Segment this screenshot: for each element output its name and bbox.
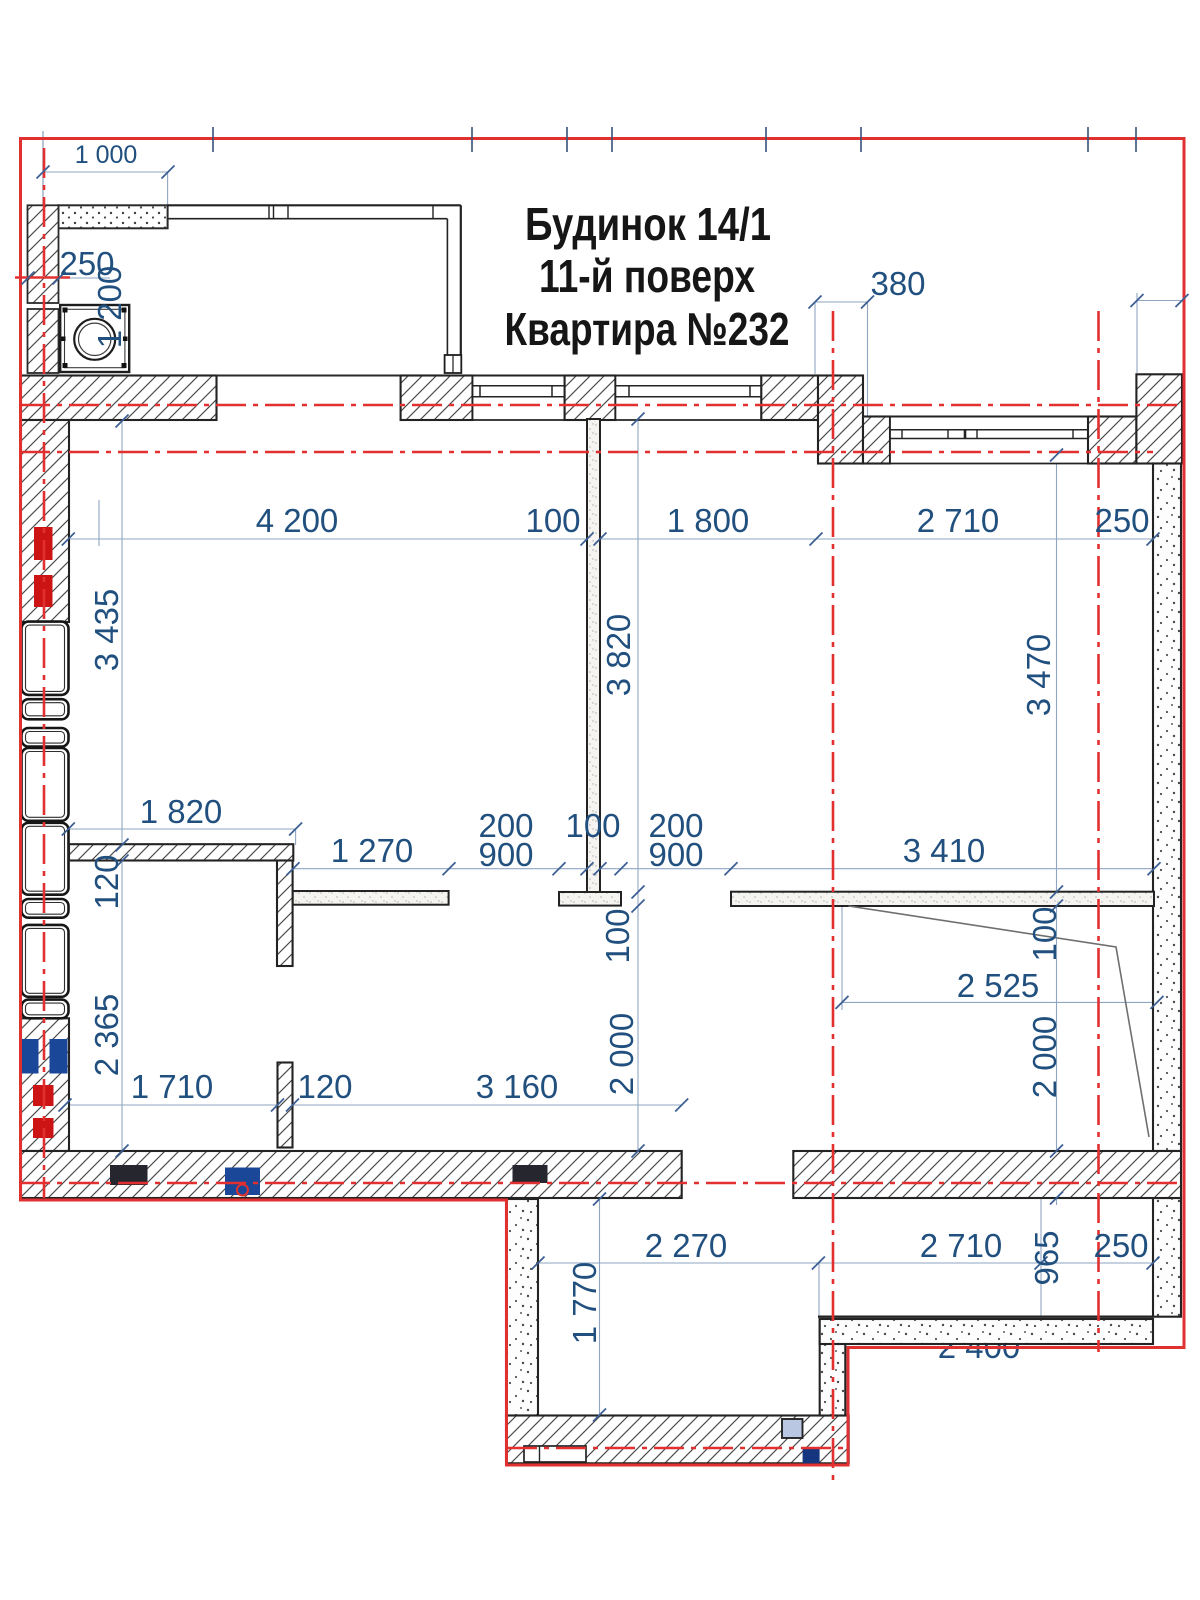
svg-text:2 000: 2 000: [603, 1013, 640, 1096]
svg-text:3 470: 3 470: [1020, 634, 1057, 717]
svg-text:Квартира №232: Квартира №232: [505, 303, 790, 355]
svg-text:250: 250: [1093, 1227, 1148, 1264]
svg-text:1 800: 1 800: [667, 502, 750, 539]
svg-text:3 160: 3 160: [476, 1068, 559, 1105]
svg-text:1 770: 1 770: [566, 1262, 603, 1345]
svg-text:3 410: 3 410: [903, 832, 986, 869]
svg-text:3 820: 3 820: [600, 614, 637, 697]
svg-text:1 710: 1 710: [131, 1068, 214, 1105]
svg-text:2 365: 2 365: [88, 994, 125, 1077]
svg-text:250: 250: [1094, 502, 1149, 539]
svg-text:1 820: 1 820: [140, 793, 223, 830]
svg-text:100: 100: [599, 908, 636, 963]
svg-text:380: 380: [870, 265, 925, 302]
svg-text:1 200: 1 200: [91, 266, 128, 349]
svg-text:2 270: 2 270: [645, 1227, 728, 1264]
svg-text:900: 900: [648, 836, 703, 873]
svg-text:2 000: 2 000: [1026, 1016, 1063, 1099]
svg-text:120: 120: [88, 854, 125, 909]
svg-text:100: 100: [1026, 906, 1063, 961]
svg-text:900: 900: [478, 836, 533, 873]
svg-text:2 710: 2 710: [920, 1227, 1003, 1264]
svg-text:11-й поверх: 11-й поверх: [539, 250, 755, 302]
svg-text:965: 965: [1028, 1230, 1065, 1285]
svg-text:2 525: 2 525: [957, 967, 1040, 1004]
svg-text:3 435: 3 435: [88, 589, 125, 672]
svg-text:4 200: 4 200: [256, 502, 339, 539]
svg-text:1 000: 1 000: [75, 141, 138, 169]
svg-text:100: 100: [525, 502, 580, 539]
svg-text:100: 100: [565, 807, 620, 844]
svg-text:120: 120: [297, 1068, 352, 1105]
svg-text:1 270: 1 270: [331, 832, 414, 869]
svg-text:2 710: 2 710: [917, 502, 1000, 539]
svg-text:Будинок 14/1: Будинок 14/1: [525, 198, 771, 250]
